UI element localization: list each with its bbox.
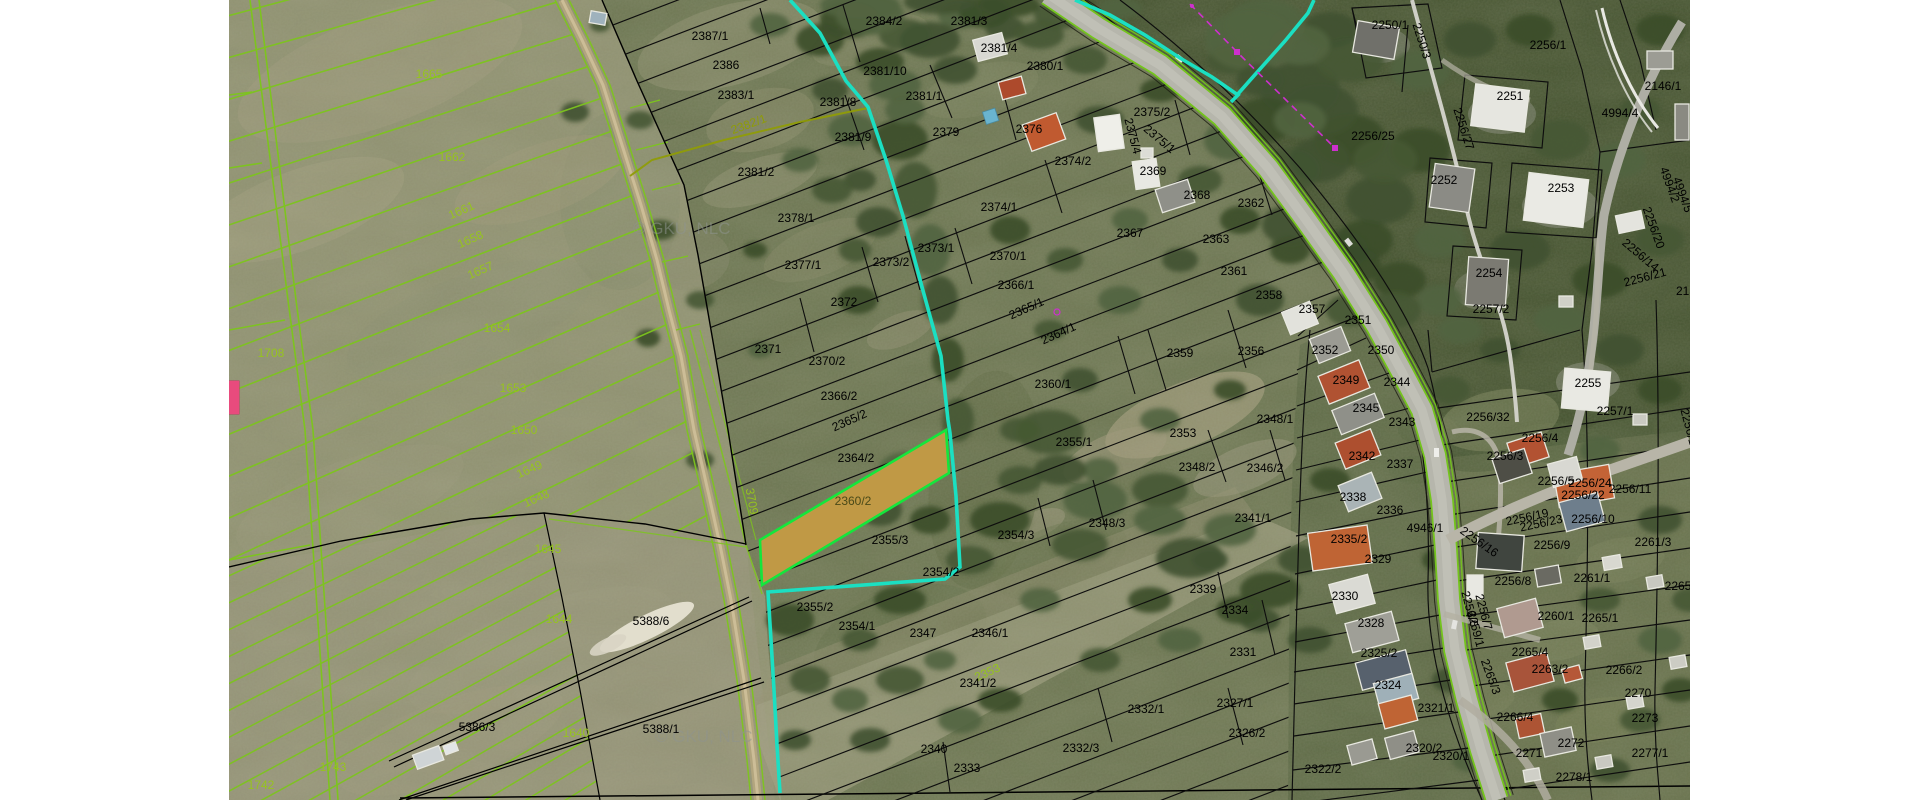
svg-text:2377/1: 2377/1 xyxy=(785,258,822,272)
svg-text:2381/10: 2381/10 xyxy=(863,64,907,78)
svg-text:2261/1: 2261/1 xyxy=(1574,571,1611,585)
svg-text:2271: 2271 xyxy=(1516,746,1543,760)
svg-text:2325/2: 2325/2 xyxy=(1361,646,1398,660)
svg-text:2370/2: 2370/2 xyxy=(809,354,846,368)
svg-text:2263/2: 2263/2 xyxy=(1532,662,1569,676)
svg-text:2374/1: 2374/1 xyxy=(981,200,1018,214)
svg-text:2260/1: 2260/1 xyxy=(1538,609,1575,623)
svg-text:1644: 1644 xyxy=(546,612,573,626)
svg-text:2273: 2273 xyxy=(1632,711,1659,725)
svg-text:2372: 2372 xyxy=(831,295,858,309)
svg-text:2333: 2333 xyxy=(954,761,981,775)
svg-text:2278/1: 2278/1 xyxy=(1556,770,1593,784)
svg-text:2256/11: 2256/11 xyxy=(1609,482,1652,496)
svg-text:2378/1: 2378/1 xyxy=(778,211,815,225)
svg-text:2327/1: 2327/1 xyxy=(1217,696,1254,710)
svg-text:2375/2: 2375/2 xyxy=(1134,105,1171,119)
svg-text:2265/4: 2265/4 xyxy=(1512,645,1549,659)
svg-text:2253: 2253 xyxy=(1548,181,1575,195)
svg-text:2374/2: 2374/2 xyxy=(1055,154,1092,168)
svg-text:2320/1: 2320/1 xyxy=(1433,749,1470,763)
svg-text:2338: 2338 xyxy=(1340,490,1367,504)
svg-text:2329: 2329 xyxy=(1365,552,1392,566)
svg-text:2345: 2345 xyxy=(1353,401,1380,415)
svg-text:2257/1: 2257/1 xyxy=(1597,404,1634,418)
svg-text:2366/1: 2366/1 xyxy=(998,278,1035,292)
svg-text:2251: 2251 xyxy=(1497,89,1524,103)
svg-text:© GKU, NLC: © GKU, NLC xyxy=(633,219,731,238)
svg-text:1653: 1653 xyxy=(500,381,527,395)
svg-text:2272: 2272 xyxy=(1558,736,1585,750)
svg-text:2344: 2344 xyxy=(1384,375,1411,389)
svg-text:2347: 2347 xyxy=(910,626,937,640)
svg-text:5388/6: 5388/6 xyxy=(633,614,670,628)
svg-text:2328: 2328 xyxy=(1358,616,1385,630)
svg-text:4994/4: 4994/4 xyxy=(1602,106,1639,120)
svg-text:1742: 1742 xyxy=(248,778,275,792)
svg-text:2386: 2386 xyxy=(713,58,740,72)
svg-text:2379: 2379 xyxy=(933,125,960,139)
svg-text:2346/1: 2346/1 xyxy=(972,626,1009,640)
svg-text:2332/1: 2332/1 xyxy=(1128,702,1165,716)
svg-text:2387/1: 2387/1 xyxy=(692,29,729,43)
svg-text:2256/3: 2256/3 xyxy=(1487,449,1524,463)
svg-text:2383/1: 2383/1 xyxy=(718,88,755,102)
svg-text:2381/1: 2381/1 xyxy=(906,89,943,103)
svg-text:2340: 2340 xyxy=(921,742,948,756)
svg-text:2380/1: 2380/1 xyxy=(1027,59,1064,73)
svg-text:4946/1: 4946/1 xyxy=(1407,521,1444,535)
svg-text:2336: 2336 xyxy=(1377,503,1404,517)
svg-text:2351: 2351 xyxy=(1345,313,1372,327)
svg-text:2363: 2363 xyxy=(1203,232,1230,246)
svg-text:2359: 2359 xyxy=(1167,346,1194,360)
svg-text:2373/2: 2373/2 xyxy=(873,255,910,269)
svg-text:5388/1: 5388/1 xyxy=(643,722,680,736)
svg-text:2146/1: 2146/1 xyxy=(1645,79,1682,93)
svg-text:1645: 1645 xyxy=(535,542,562,556)
svg-text:1650: 1650 xyxy=(511,423,538,437)
svg-text:2261/3: 2261/3 xyxy=(1635,535,1672,549)
svg-text:2341/2: 2341/2 xyxy=(960,676,997,690)
svg-text:2342: 2342 xyxy=(1349,449,1376,463)
svg-text:2256/32: 2256/32 xyxy=(1466,410,1510,424)
svg-text:2373/1: 2373/1 xyxy=(918,241,955,255)
svg-text:2376: 2376 xyxy=(1016,122,1043,136)
svg-text:1665: 1665 xyxy=(416,67,443,81)
svg-text:2356: 2356 xyxy=(1238,344,1265,358)
svg-text:2343: 2343 xyxy=(1389,415,1416,429)
svg-text:2324: 2324 xyxy=(1375,678,1402,692)
svg-text:2355/3: 2355/3 xyxy=(872,533,909,547)
svg-text:2369: 2369 xyxy=(1140,164,1167,178)
svg-text:2255: 2255 xyxy=(1575,376,1602,390)
svg-text:2337: 2337 xyxy=(1387,457,1414,471)
svg-text:2354/2: 2354/2 xyxy=(923,565,960,579)
svg-text:2381/2: 2381/2 xyxy=(738,165,775,179)
svg-text:2368: 2368 xyxy=(1184,188,1211,202)
svg-text:2349: 2349 xyxy=(1333,373,1360,387)
svg-text:2254: 2254 xyxy=(1476,266,1503,280)
svg-text:2266/4: 2266/4 xyxy=(1497,710,1534,724)
svg-text:1654: 1654 xyxy=(484,321,511,335)
svg-text:2348/3: 2348/3 xyxy=(1089,516,1126,530)
svg-text:2331: 2331 xyxy=(1230,645,1257,659)
svg-text:5386/3: 5386/3 xyxy=(459,720,496,734)
svg-text:2257/2: 2257/2 xyxy=(1473,302,1510,316)
svg-text:2371: 2371 xyxy=(755,342,782,356)
svg-text:2360/1: 2360/1 xyxy=(1035,377,1072,391)
svg-text:2348/2: 2348/2 xyxy=(1179,460,1216,474)
svg-text:2381/9: 2381/9 xyxy=(835,130,872,144)
svg-text:2266/2: 2266/2 xyxy=(1606,663,1643,677)
svg-text:2339: 2339 xyxy=(1190,582,1217,596)
svg-text:2366/2: 2366/2 xyxy=(821,389,858,403)
svg-text:2270: 2270 xyxy=(1625,686,1652,700)
svg-text:2358: 2358 xyxy=(1256,288,1283,302)
svg-text:2256/1: 2256/1 xyxy=(1530,38,1567,52)
svg-text:2341/1: 2341/1 xyxy=(1235,511,1272,525)
svg-text:2362: 2362 xyxy=(1238,196,1265,210)
svg-text:2381/8: 2381/8 xyxy=(820,95,857,109)
svg-text:2332/3: 2332/3 xyxy=(1063,741,1100,755)
svg-text:2277/1: 2277/1 xyxy=(1632,746,1669,760)
svg-text:2256/25: 2256/25 xyxy=(1351,129,1395,143)
svg-text:1743: 1743 xyxy=(320,760,347,774)
svg-text:2250/1: 2250/1 xyxy=(1372,18,1409,32)
svg-text:2361: 2361 xyxy=(1221,264,1248,278)
svg-text:2322/2: 2322/2 xyxy=(1305,762,1342,776)
svg-text:2346/2: 2346/2 xyxy=(1247,461,1284,475)
svg-text:2348/1: 2348/1 xyxy=(1257,412,1294,426)
svg-text:2360/2: 2360/2 xyxy=(835,494,872,508)
svg-text:2355/2: 2355/2 xyxy=(797,600,834,614)
svg-text:2256/8: 2256/8 xyxy=(1495,574,1532,588)
svg-text:2330: 2330 xyxy=(1332,589,1359,603)
svg-text:2335/2: 2335/2 xyxy=(1331,532,1368,546)
svg-text:2384/2: 2384/2 xyxy=(866,14,903,28)
svg-text:2367: 2367 xyxy=(1117,226,1144,240)
svg-text:2256/22: 2256/22 xyxy=(1561,488,1605,502)
svg-text:2256/9: 2256/9 xyxy=(1534,538,1571,552)
svg-text:2334: 2334 xyxy=(1222,603,1249,617)
svg-text:2370/1: 2370/1 xyxy=(990,249,1027,263)
svg-text:1708: 1708 xyxy=(258,346,285,360)
svg-text:2357: 2357 xyxy=(1299,302,1326,316)
svg-text:2326/2: 2326/2 xyxy=(1229,726,1266,740)
svg-text:1640: 1640 xyxy=(563,726,590,740)
svg-text:2350: 2350 xyxy=(1368,343,1395,357)
svg-text:2381/3: 2381/3 xyxy=(951,14,988,28)
svg-text:2354/1: 2354/1 xyxy=(839,619,876,633)
svg-text:2256/4: 2256/4 xyxy=(1522,431,1559,445)
svg-text:2252: 2252 xyxy=(1431,173,1458,187)
svg-text:1662: 1662 xyxy=(439,150,466,164)
svg-text:2352: 2352 xyxy=(1312,343,1339,357)
svg-text:2265/1: 2265/1 xyxy=(1582,611,1619,625)
svg-text:2364/2: 2364/2 xyxy=(838,451,875,465)
svg-text:2353: 2353 xyxy=(1170,426,1197,440)
svg-text:2321/1: 2321/1 xyxy=(1418,701,1455,715)
svg-text:2381/4: 2381/4 xyxy=(981,41,1018,55)
svg-text:2355/1: 2355/1 xyxy=(1056,435,1093,449)
svg-text:2256/10: 2256/10 xyxy=(1571,512,1615,526)
svg-text:2354/3: 2354/3 xyxy=(998,528,1035,542)
